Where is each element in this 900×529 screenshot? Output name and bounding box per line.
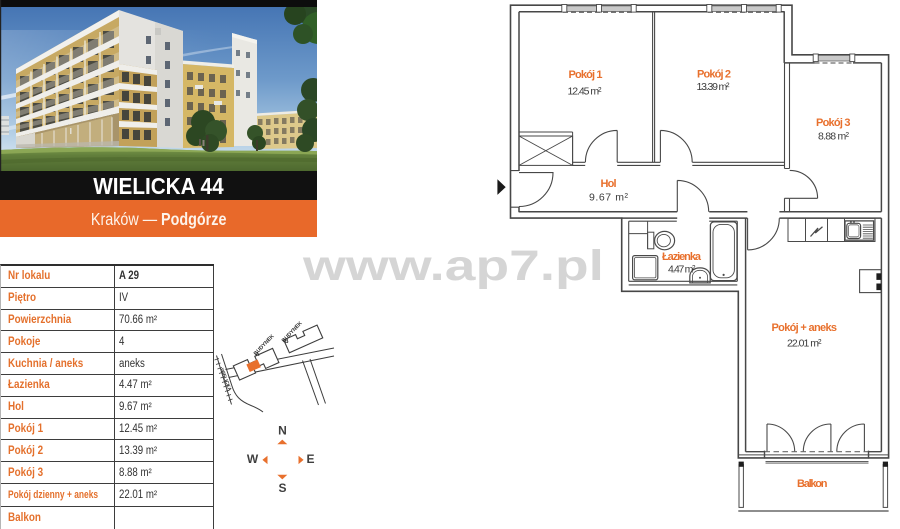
svg-text:WIELICKA: WIELICKA	[218, 367, 232, 392]
svg-text:Pokój 3: Pokój 3	[816, 117, 851, 129]
svg-text:Pokój + aneks: Pokój + aneks	[772, 322, 838, 334]
svg-text:Pokój 2: Pokój 2	[697, 69, 731, 81]
svg-text:13.39 m²: 13.39 m²	[697, 81, 731, 93]
svg-text:12.45 m²: 12.45 m²	[568, 86, 603, 98]
svg-text:22.01 m²: 22.01 m²	[787, 338, 822, 350]
svg-text:A: A	[255, 352, 259, 358]
svg-text:8.88 m²: 8.88 m²	[818, 131, 850, 143]
svg-text:Łazienka: Łazienka	[662, 251, 702, 263]
svg-text:Hol: Hol	[601, 178, 617, 190]
svg-text:S: S	[278, 481, 286, 495]
svg-text:W: W	[247, 452, 259, 466]
svg-text:Balkon: Balkon	[797, 478, 828, 490]
svg-text:9.67 m²: 9.67 m²	[589, 192, 629, 204]
svg-text:www.ap7.pl: www.ap7.pl	[302, 242, 604, 290]
svg-text:4.47 m²: 4.47 m²	[668, 264, 696, 276]
svg-text:E: E	[306, 452, 314, 466]
svg-text:N: N	[278, 424, 287, 438]
svg-text:Pokój 1: Pokój 1	[569, 69, 603, 81]
svg-text:B: B	[284, 339, 288, 345]
